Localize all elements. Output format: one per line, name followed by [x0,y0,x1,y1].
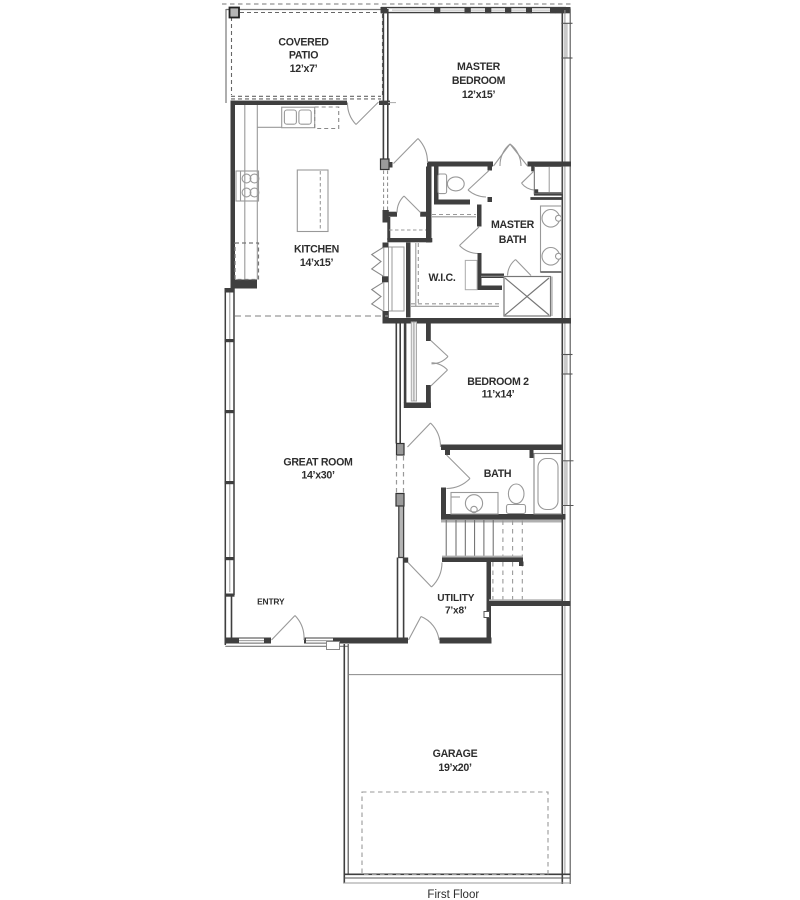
svg-text:BEDROOM: BEDROOM [452,75,506,87]
svg-text:ENTRY: ENTRY [257,596,285,606]
svg-text:14’x15’: 14’x15’ [300,257,334,269]
svg-text:7’x8’: 7’x8’ [445,606,467,617]
svg-text:BEDROOM 2: BEDROOM 2 [467,376,529,388]
svg-text:MASTER: MASTER [457,61,501,73]
svg-text:GARAGE: GARAGE [433,748,478,760]
svg-text:W.I.C.: W.I.C. [428,272,455,284]
svg-text:KITCHEN: KITCHEN [294,244,339,256]
svg-text:12’x7’: 12’x7’ [290,63,318,75]
svg-text:11’x14’: 11’x14’ [482,389,515,401]
svg-text:PATIO: PATIO [289,49,318,61]
svg-text:12’x15’: 12’x15’ [462,89,496,101]
svg-text:BATH: BATH [499,234,526,246]
svg-text:19’x20’: 19’x20’ [438,762,472,774]
svg-text:First Floor: First Floor [427,889,479,900]
svg-text:BATH: BATH [484,468,511,480]
svg-text:UTILITY: UTILITY [437,593,474,604]
svg-text:COVERED: COVERED [278,36,329,48]
svg-text:GREAT ROOM: GREAT ROOM [283,457,353,469]
svg-text:14’x30’: 14’x30’ [301,470,335,482]
svg-text:MASTER: MASTER [491,219,535,231]
